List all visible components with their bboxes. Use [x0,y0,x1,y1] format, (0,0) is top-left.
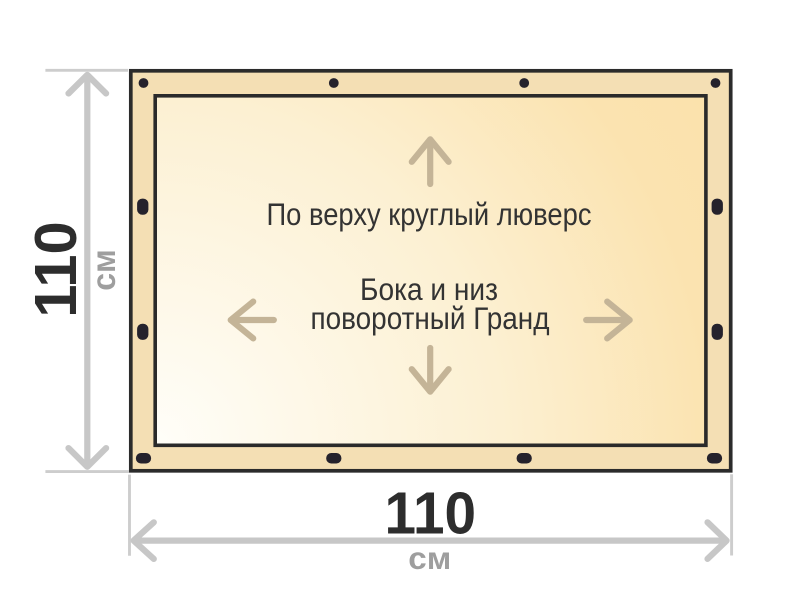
svg-text:поворотный Гранд: поворотный Гранд [311,300,550,336]
svg-text:По верху круглый люверс: По верху круглый люверс [267,196,592,232]
svg-text:110: 110 [385,481,477,547]
svg-text:см: см [85,249,122,291]
svg-text:110: 110 [23,221,89,318]
svg-text:см: см [408,540,451,576]
